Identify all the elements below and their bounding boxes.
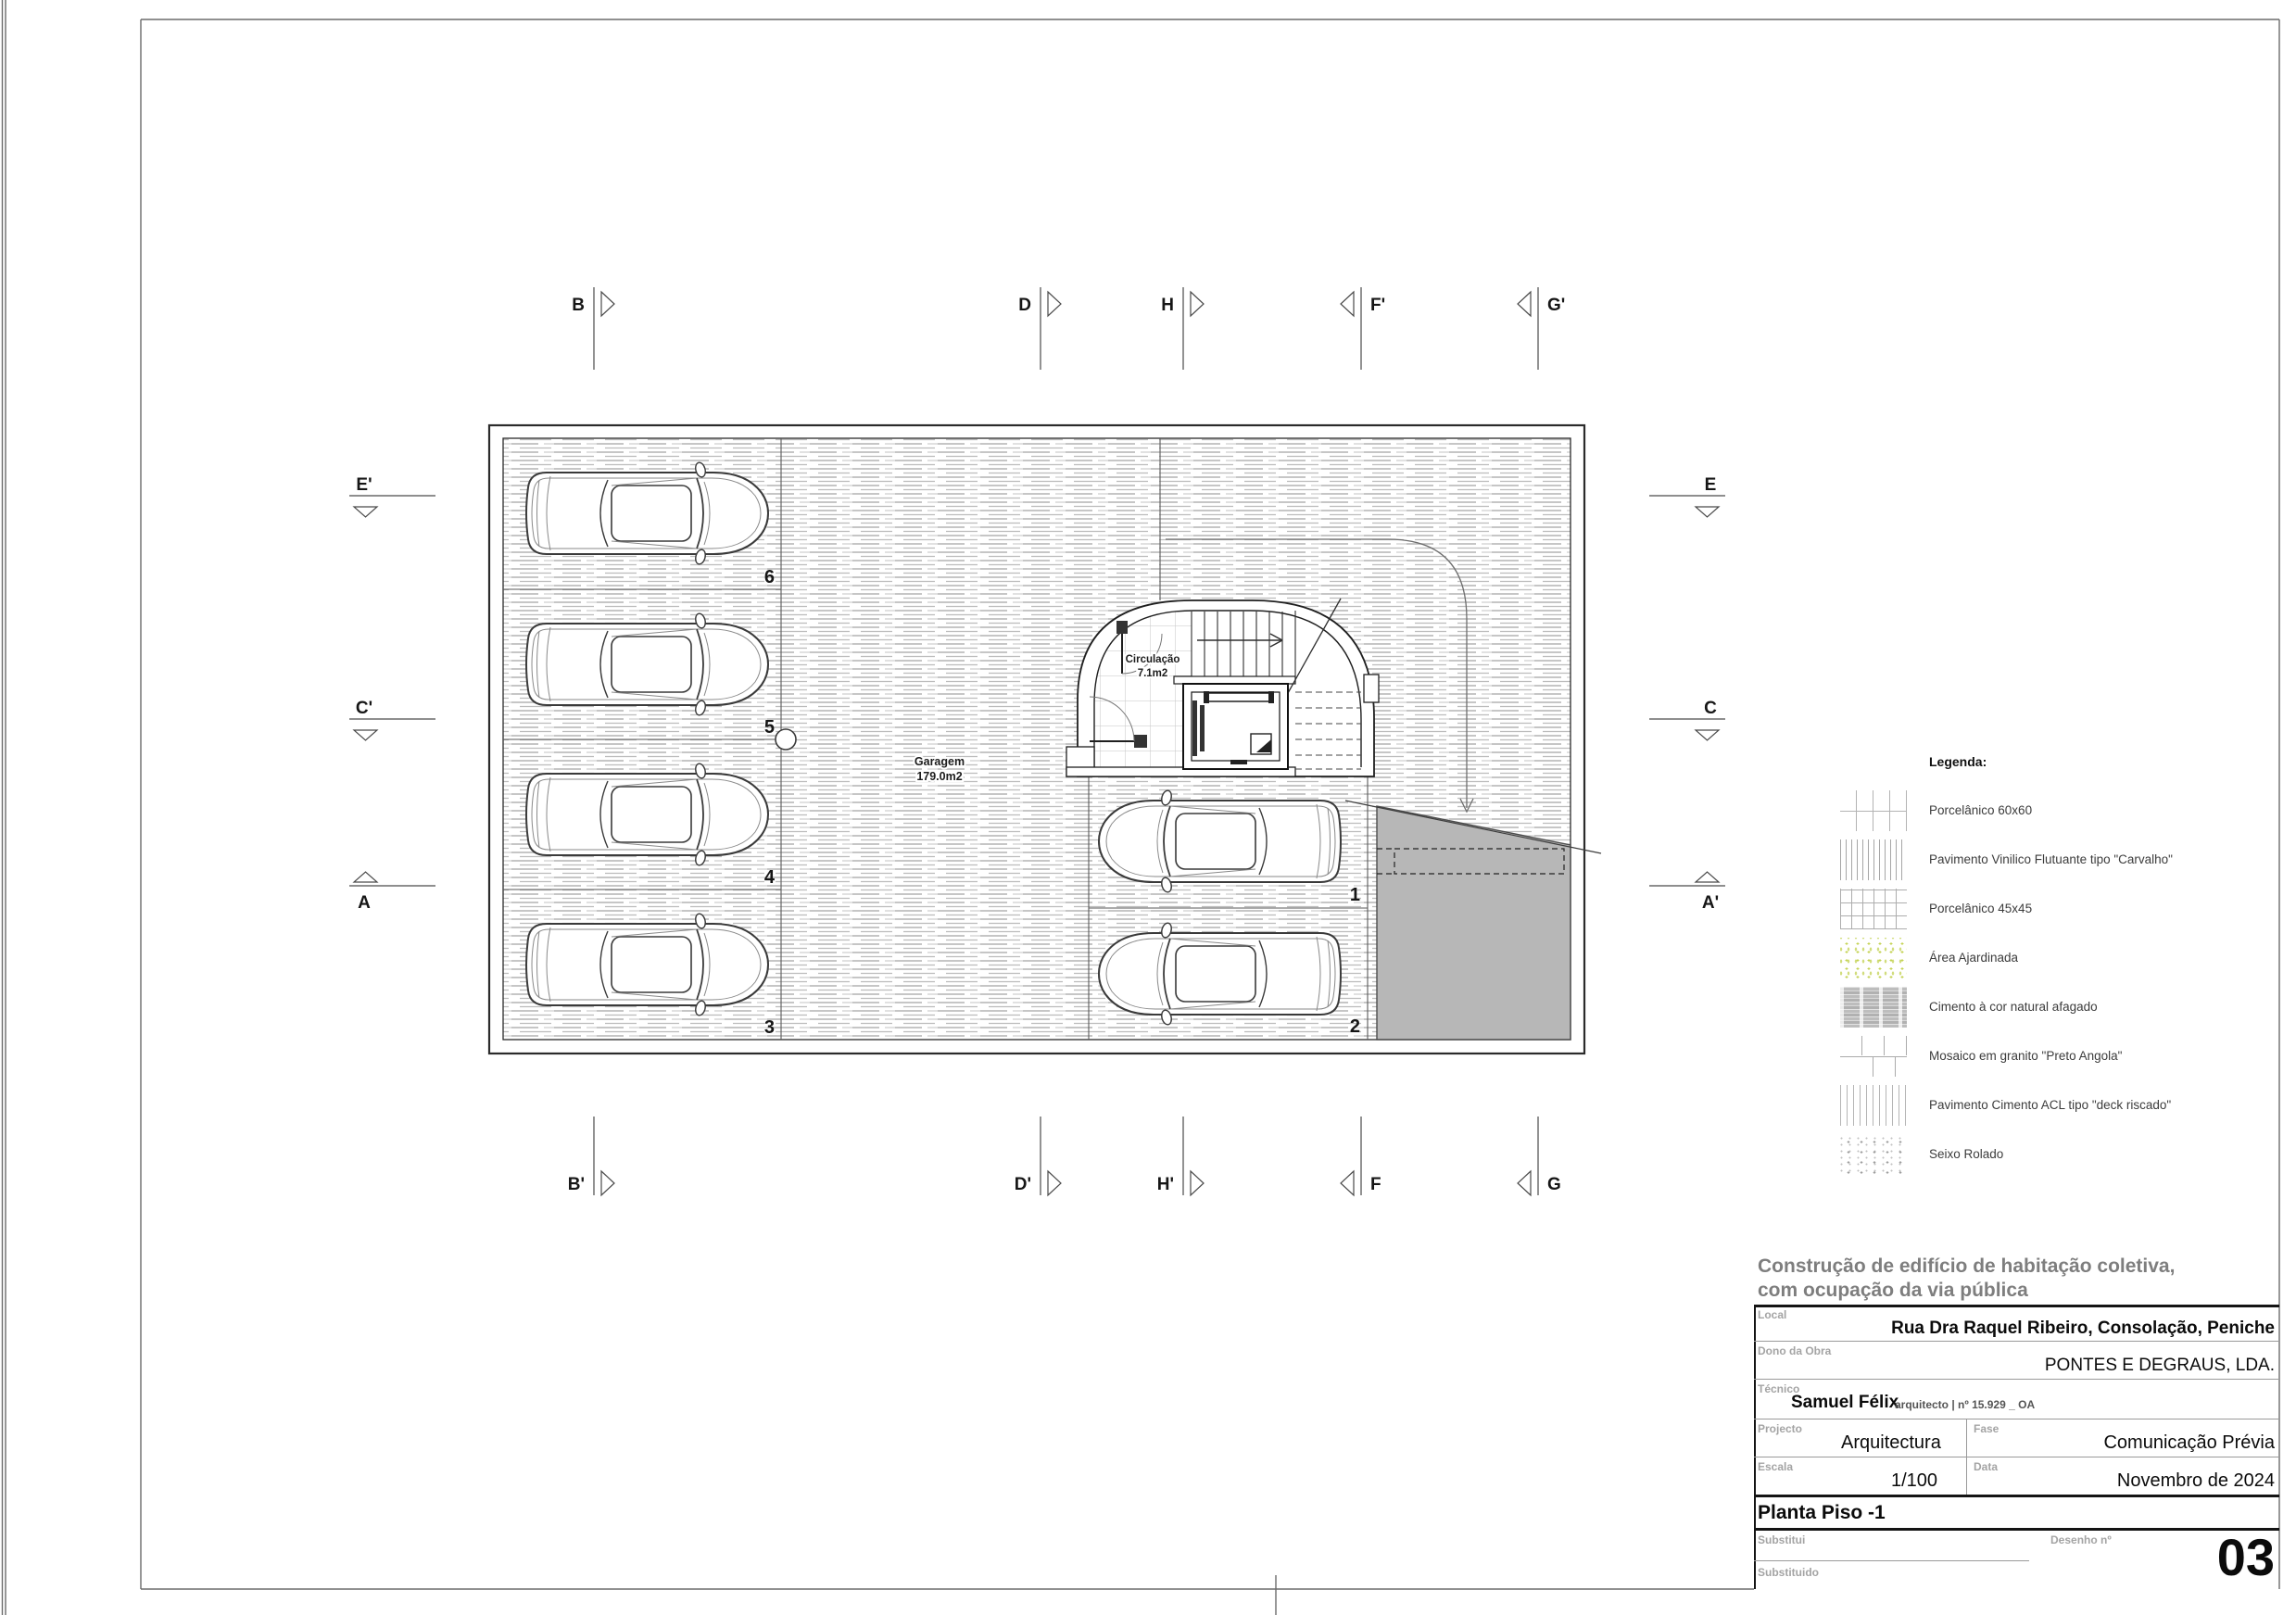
marker-Dp: D' bbox=[1015, 1175, 1031, 1194]
legend-swatch-seixo bbox=[1840, 1134, 1907, 1175]
marker-G: G bbox=[1547, 1175, 1561, 1194]
marker-F: F bbox=[1370, 1175, 1381, 1194]
drawing-sheet: 6 5 4 3 1 2 bbox=[0, 0, 2296, 1615]
circulacao-label: Circulação bbox=[1126, 654, 1180, 665]
marker-Ap: A' bbox=[1702, 893, 1719, 913]
legend-swatch-ajardinada bbox=[1840, 938, 1907, 978]
marker-Ep: E' bbox=[356, 475, 372, 495]
marker-B: B bbox=[572, 296, 585, 315]
elevator-shaft bbox=[1183, 684, 1288, 769]
stair-core bbox=[1066, 599, 1379, 776]
legend-item: Seixo Rolado bbox=[1840, 1134, 2276, 1177]
marker-Cp: C' bbox=[356, 699, 372, 718]
legend-swatch-vinilico bbox=[1840, 839, 1907, 880]
legend-item: Mosaico em granito "Preto Angola" bbox=[1840, 1036, 2276, 1079]
stall-number-3: 3 bbox=[764, 1017, 775, 1038]
garagem-area: 179.0m2 bbox=[916, 770, 962, 783]
legend-item: Porcelânico 60x60 bbox=[1840, 790, 2276, 833]
legend-swatch-cimento bbox=[1840, 987, 1907, 1028]
marker-H: H bbox=[1161, 296, 1174, 315]
marker-Gp: G' bbox=[1547, 296, 1565, 315]
garagem-label: Garagem bbox=[915, 755, 965, 768]
legend-item: Pavimento Cimento ACL tipo "deck riscado… bbox=[1840, 1085, 2276, 1128]
stall-number-2: 2 bbox=[1350, 1016, 1360, 1037]
marker-E: E bbox=[1705, 475, 1717, 495]
marker-C: C bbox=[1704, 699, 1717, 718]
legend-item: Cimento à cor natural afagado bbox=[1840, 987, 2276, 1029]
marker-Fp: F' bbox=[1370, 296, 1385, 315]
stall-number-5: 5 bbox=[764, 717, 775, 738]
legend-item: Pavimento Vinilico Flutuante tipo "Carva… bbox=[1840, 839, 2276, 882]
stall-number-4: 4 bbox=[764, 867, 776, 888]
legend-title: Legenda: bbox=[1929, 754, 1987, 769]
marker-D: D bbox=[1018, 296, 1031, 315]
legend-swatch-acl bbox=[1840, 1085, 1907, 1126]
legend-swatch-porcelanico-60 bbox=[1840, 790, 1907, 831]
marker-A: A bbox=[358, 893, 371, 913]
legend-swatch-mosaico bbox=[1840, 1036, 1907, 1077]
stall-number-6: 6 bbox=[764, 567, 775, 587]
marker-Hp: H' bbox=[1157, 1175, 1174, 1194]
stall-number-1: 1 bbox=[1350, 885, 1360, 905]
legend-item: Porcelânico 45x45 bbox=[1840, 889, 2276, 931]
legend-item: Área Ajardinada bbox=[1840, 938, 2276, 980]
marker-Bp: B' bbox=[568, 1175, 585, 1194]
legend-swatch-porcelanico-45 bbox=[1840, 889, 1907, 929]
structural-column bbox=[776, 729, 796, 750]
circulacao-area: 7.1m2 bbox=[1138, 668, 1168, 679]
